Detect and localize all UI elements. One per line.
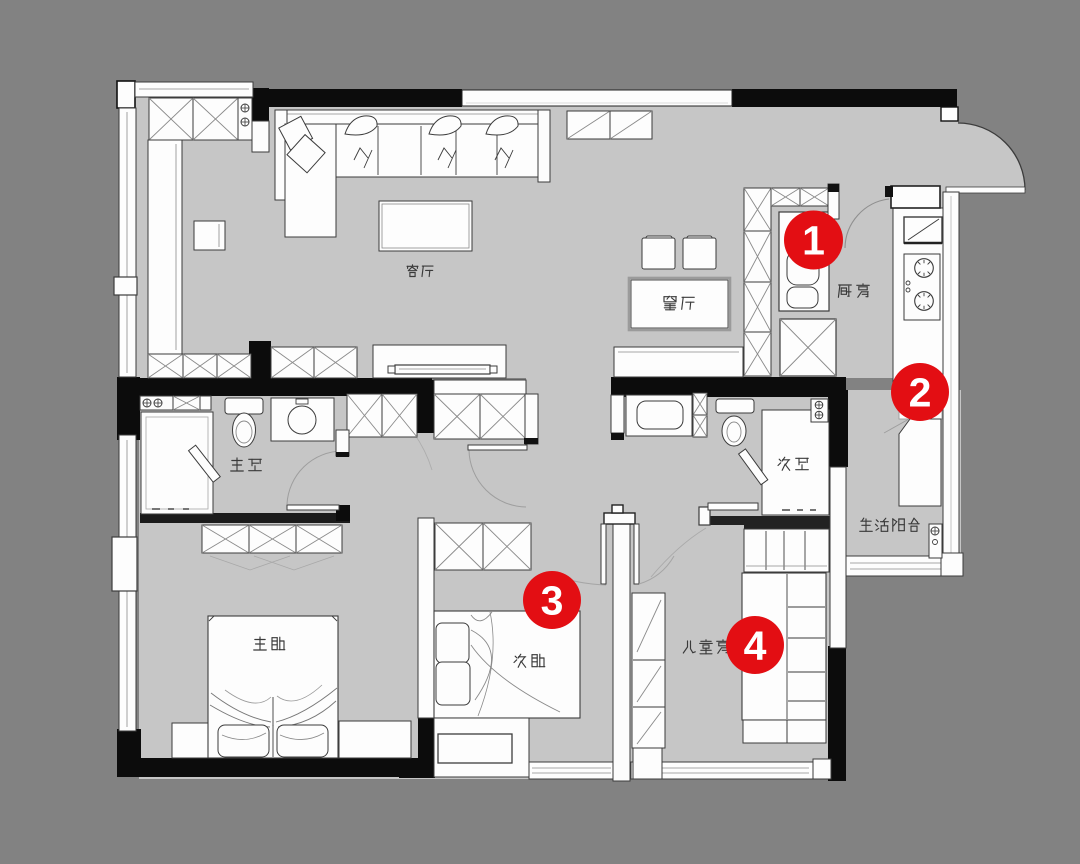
svg-text:4: 4 [744,623,767,669]
svg-text:2: 2 [909,370,932,416]
svg-text:1: 1 [802,218,825,264]
svg-text:3: 3 [541,578,564,624]
